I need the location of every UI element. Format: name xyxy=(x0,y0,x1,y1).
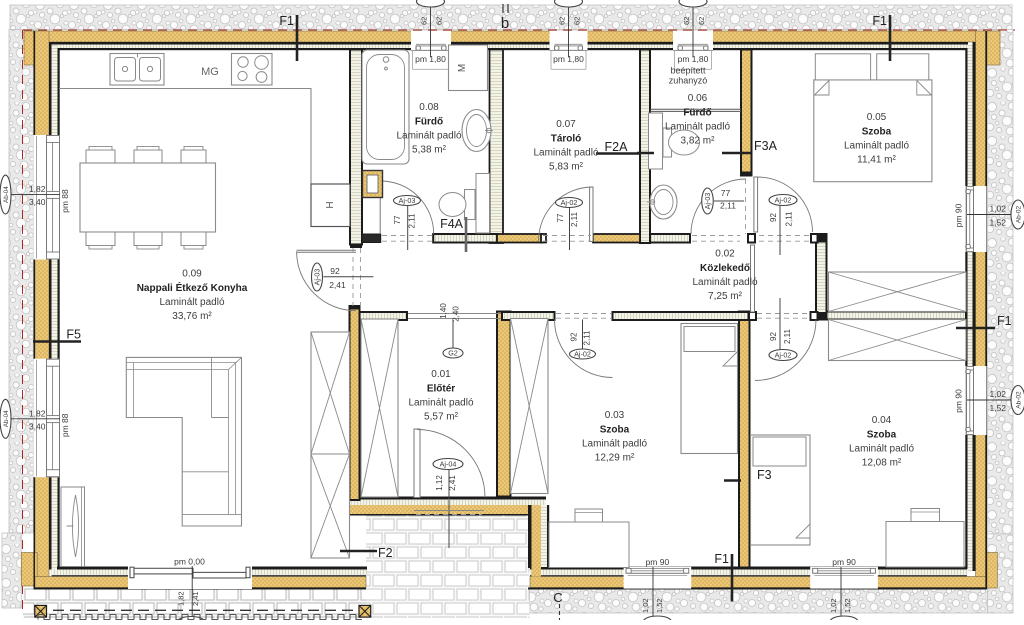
svg-text:F2A: F2A xyxy=(605,140,629,154)
svg-text:7,25 m²: 7,25 m² xyxy=(708,291,743,302)
svg-text:92: 92 xyxy=(769,213,778,222)
svg-text:0.06: 0.06 xyxy=(688,93,708,104)
svg-text:C: C xyxy=(553,590,562,605)
svg-text:beépített: beépített xyxy=(670,66,706,76)
svg-text:92: 92 xyxy=(330,266,340,276)
svg-text:Aj-02: Aj-02 xyxy=(574,350,591,359)
svg-text:2,41: 2,41 xyxy=(329,280,346,290)
svg-text:12,29 m²: 12,29 m² xyxy=(595,453,635,464)
svg-text:pm 90: pm 90 xyxy=(832,557,856,567)
svg-text:Aj-04: Aj-04 xyxy=(440,460,457,469)
svg-text:zuhanyzó: zuhanyzó xyxy=(669,76,708,86)
svg-text:Laminált padló: Laminált padló xyxy=(396,131,461,142)
svg-text:Szoba: Szoba xyxy=(862,127,892,138)
svg-text:pm 90: pm 90 xyxy=(954,389,964,413)
svg-text:Szoba: Szoba xyxy=(600,425,630,436)
svg-text:1,52: 1,52 xyxy=(989,218,1006,228)
svg-text:0.07: 0.07 xyxy=(556,119,576,130)
svg-text:pm 1,80: pm 1,80 xyxy=(415,54,446,64)
svg-text:Ab-04: Ab-04 xyxy=(3,186,10,203)
svg-text:1,40: 1,40 xyxy=(439,303,448,319)
svg-text:pm 1,80: pm 1,80 xyxy=(553,54,584,64)
svg-text:3,82 m²: 3,82 m² xyxy=(681,136,716,147)
svg-text:Laminált padló: Laminált padló xyxy=(849,444,914,455)
svg-text:0.04: 0.04 xyxy=(872,415,892,426)
svg-text:1,02: 1,02 xyxy=(989,389,1006,399)
svg-text:Laminált padló: Laminált padló xyxy=(844,141,909,152)
svg-text:Ab-02: Ab-02 xyxy=(1016,205,1023,223)
svg-text:Laminált padló: Laminált padló xyxy=(692,277,757,288)
svg-text:77: 77 xyxy=(721,188,731,198)
svg-text:F3A: F3A xyxy=(754,139,778,153)
svg-text:Aj-02: Aj-02 xyxy=(775,196,792,205)
svg-text:F2: F2 xyxy=(378,546,393,560)
svg-text:1,02: 1,02 xyxy=(989,204,1006,214)
svg-text:Tároló: Tároló xyxy=(551,134,582,145)
svg-text:1,52: 1,52 xyxy=(843,598,852,613)
svg-text:Szoba: Szoba xyxy=(867,430,897,441)
svg-text:0.08: 0.08 xyxy=(419,102,439,113)
svg-text:92: 92 xyxy=(570,332,579,341)
svg-text:1,02: 1,02 xyxy=(829,598,838,613)
svg-text:Aj-02: Aj-02 xyxy=(561,198,578,207)
svg-text:62: 62 xyxy=(573,17,582,25)
svg-text:pm 88: pm 88 xyxy=(60,189,70,213)
svg-text:MG: MG xyxy=(201,66,219,78)
svg-text:1,52: 1,52 xyxy=(655,598,664,613)
svg-text:1,82: 1,82 xyxy=(29,184,46,194)
svg-text:b: b xyxy=(501,15,509,32)
svg-text:F5: F5 xyxy=(66,328,81,342)
svg-text:62: 62 xyxy=(558,17,567,25)
svg-text:3,40: 3,40 xyxy=(29,421,46,431)
svg-text:Ab-04: Ab-04 xyxy=(3,410,10,427)
svg-text:pm 1,80: pm 1,80 xyxy=(678,54,709,64)
svg-text:2,11: 2,11 xyxy=(570,211,579,227)
svg-text:pm 88: pm 88 xyxy=(60,413,70,437)
svg-text:Közlekedő: Közlekedő xyxy=(700,263,750,274)
svg-text:2,41: 2,41 xyxy=(191,591,200,606)
svg-text:92: 92 xyxy=(769,332,778,341)
svg-text:F1: F1 xyxy=(997,314,1012,328)
svg-text:Laminált padló: Laminált padló xyxy=(533,148,598,159)
svg-text:5,57 m²: 5,57 m² xyxy=(424,412,459,423)
svg-text:3,40: 3,40 xyxy=(29,197,46,207)
svg-text:0.05: 0.05 xyxy=(867,112,887,123)
svg-text:F1: F1 xyxy=(714,552,729,566)
svg-text:Laminált padló: Laminált padló xyxy=(582,439,647,450)
svg-text:33,76 m²: 33,76 m² xyxy=(172,311,212,322)
svg-text:pm 90: pm 90 xyxy=(646,557,670,567)
svg-text:0.03: 0.03 xyxy=(605,410,625,421)
svg-text:F3: F3 xyxy=(757,468,772,482)
svg-text:Fürdő: Fürdő xyxy=(683,108,711,119)
svg-text:Aj-03: Aj-03 xyxy=(313,269,322,286)
svg-text:2,11: 2,11 xyxy=(783,328,792,344)
svg-text:2,41: 2,41 xyxy=(448,475,457,491)
svg-text:pm 90: pm 90 xyxy=(954,203,964,227)
svg-text:Laminált padló: Laminált padló xyxy=(159,297,224,308)
svg-text:pm 0,00: pm 0,00 xyxy=(174,557,205,567)
svg-text:F1: F1 xyxy=(279,14,294,28)
svg-text:1,82: 1,82 xyxy=(177,591,186,606)
svg-text:12,08 m²: 12,08 m² xyxy=(862,458,902,469)
svg-text:2,11: 2,11 xyxy=(785,211,794,227)
svg-text:Aj-03: Aj-03 xyxy=(399,196,416,205)
svg-text:M: M xyxy=(457,64,468,72)
svg-text:1,12: 1,12 xyxy=(435,475,444,491)
svg-text:2,11: 2,11 xyxy=(583,330,592,346)
svg-text:2,11: 2,11 xyxy=(720,201,736,211)
svg-text:Fürdő: Fürdő xyxy=(415,117,443,128)
svg-text:Aj-02: Aj-02 xyxy=(775,351,792,360)
svg-text:5,83 m²: 5,83 m² xyxy=(549,162,584,173)
svg-text:Aj-03: Aj-03 xyxy=(703,193,712,210)
svg-text:77: 77 xyxy=(556,213,565,222)
svg-text:62: 62 xyxy=(420,17,429,25)
svg-text:2,40: 2,40 xyxy=(452,306,461,322)
svg-text:Laminált padló: Laminált padló xyxy=(665,122,730,133)
svg-text:5,38 m²: 5,38 m² xyxy=(412,145,447,156)
svg-text:1,52: 1,52 xyxy=(989,403,1006,413)
svg-text:Előtér: Előtér xyxy=(427,384,455,395)
svg-text:77: 77 xyxy=(393,215,402,224)
svg-text:Laminált padló: Laminált padló xyxy=(408,398,473,409)
svg-text:G2: G2 xyxy=(448,349,458,358)
svg-text:62: 62 xyxy=(435,17,444,25)
svg-text:F1: F1 xyxy=(872,14,887,28)
svg-text:H: H xyxy=(325,201,336,208)
svg-text:1,82: 1,82 xyxy=(29,408,46,418)
svg-text:Nappali Étkező Konyha: Nappali Étkező Konyha xyxy=(137,281,248,294)
svg-text:62: 62 xyxy=(697,17,706,25)
svg-text:Ab-02: Ab-02 xyxy=(1016,391,1023,409)
svg-text:0.01: 0.01 xyxy=(431,369,451,380)
svg-text:0.09: 0.09 xyxy=(182,269,202,280)
svg-text:F4A: F4A xyxy=(440,217,464,231)
svg-text:62: 62 xyxy=(682,17,691,25)
svg-text:0.02: 0.02 xyxy=(715,249,735,260)
svg-text:1,02: 1,02 xyxy=(641,598,650,613)
svg-text:11,41 m²: 11,41 m² xyxy=(857,155,896,166)
svg-text:2,11: 2,11 xyxy=(408,213,417,229)
